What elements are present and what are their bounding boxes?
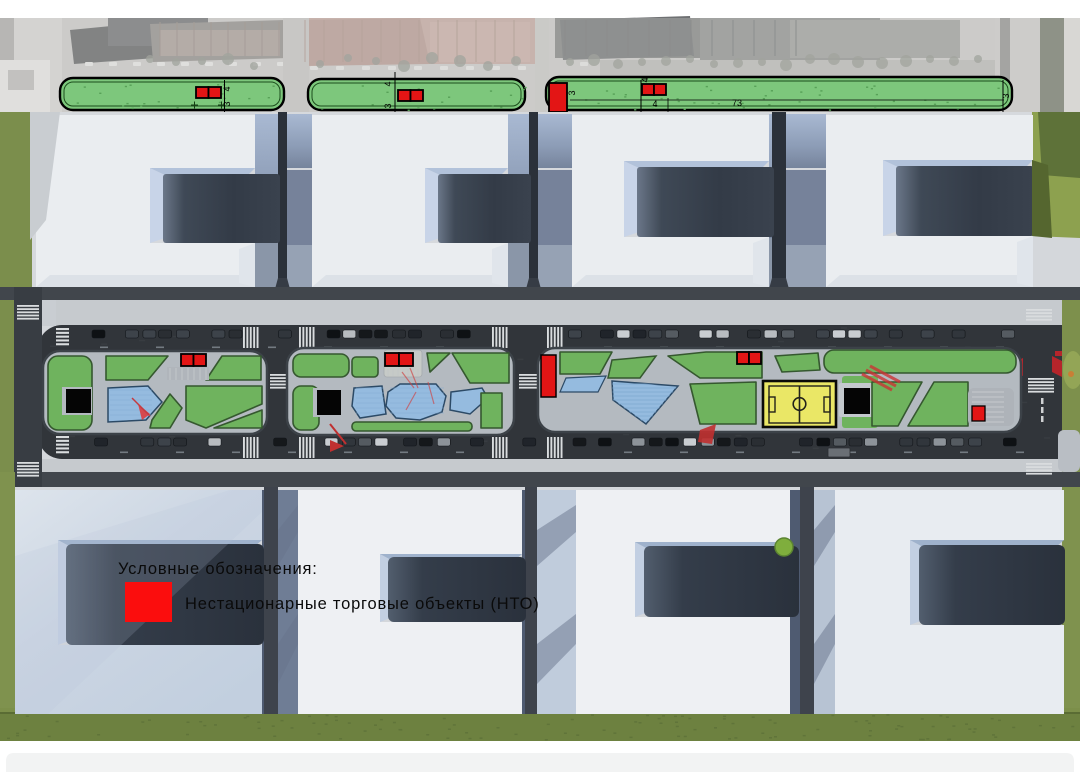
svg-text:Нестационарные торговые объект: Нестационарные торговые объекты (НТО) [185, 595, 540, 613]
svg-text:3: 3 [222, 101, 232, 106]
svg-text:3: 3 [1001, 93, 1011, 98]
svg-text:Условные обозначения:: Условные обозначения: [118, 560, 318, 578]
svg-text:73: 73 [732, 98, 742, 108]
svg-text:3: 3 [383, 103, 393, 108]
svg-text:4: 4 [640, 77, 650, 82]
svg-text:3: 3 [567, 90, 577, 95]
svg-text:4: 4 [652, 99, 657, 109]
svg-text:4: 4 [222, 86, 232, 91]
svg-text:4: 4 [383, 81, 393, 86]
